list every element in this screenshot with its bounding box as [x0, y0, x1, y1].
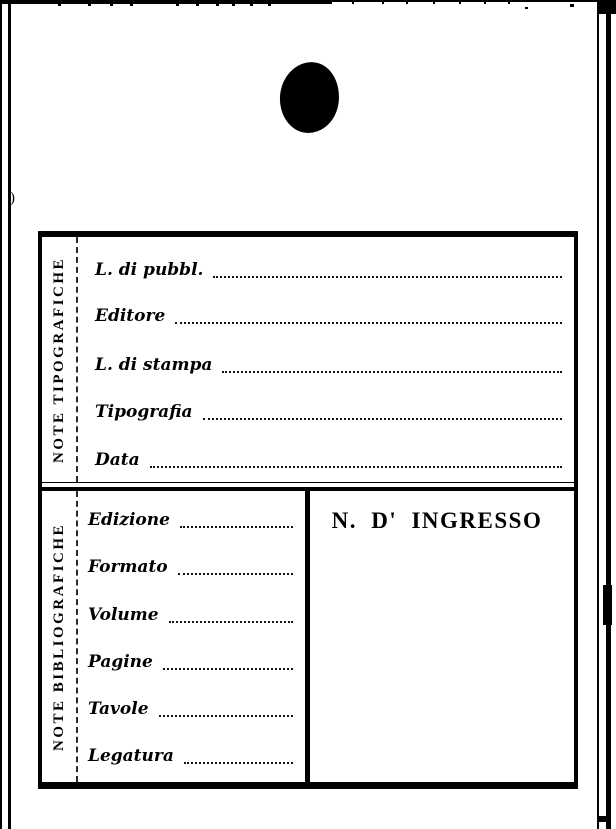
hole-punch-mark [276, 59, 342, 136]
field-label: Data [95, 450, 150, 470]
scan-artifact-top-bar [332, 0, 616, 2]
field-entry-line [169, 621, 293, 623]
scan-artifact-tick [58, 3, 61, 6]
scan-artifact-tick [406, 2, 408, 4]
field-label: Formato [88, 557, 178, 577]
field-label: Legatura [88, 746, 184, 766]
field-row: Data [95, 448, 562, 470]
scan-artifact-speck [599, 816, 608, 822]
field-entry-line [159, 715, 293, 717]
scan-artifact-right-line [606, 0, 611, 829]
scan-artifact-left-line [0, 0, 2, 829]
field-row: Pagine [88, 650, 293, 672]
scan-artifact-tick [196, 3, 199, 6]
scan-artifact-tick [250, 3, 253, 6]
section-note-bibliografiche: NOTE BIBLIOGRAFICHE Edizione Formato Vol… [42, 491, 574, 782]
field-entry-line [180, 526, 293, 528]
field-row: Tipografia [95, 400, 562, 422]
section-separator-thin-rule [42, 482, 574, 483]
scan-artifact-tick [268, 3, 271, 6]
section-note-tipografiche: NOTE TIPOGRAFICHE L. di pubbl. Editore L… [42, 237, 574, 482]
field-row: L. di stampa [95, 353, 562, 375]
side-label-strip: NOTE BIBLIOGRAFICHE [42, 491, 78, 782]
ingresso-panel: N. D' INGRESSO [310, 491, 574, 782]
field-entry-line [203, 418, 562, 420]
field-label: Editore [95, 306, 175, 326]
scan-artifact-tick [88, 3, 91, 6]
field-entry-line [163, 668, 293, 670]
scan-artifact-speck [570, 4, 574, 7]
scan-artifact-tick [484, 2, 486, 4]
field-label: Volume [88, 605, 169, 625]
scan-artifact-left-line [8, 0, 11, 829]
scan-artifact-tick [130, 3, 133, 6]
scan-artifact-right-line [597, 0, 599, 829]
ingresso-heading: N. D' INGRESSO [310, 508, 564, 534]
field-label: Tipografia [95, 402, 203, 422]
scan-artifact-tick [216, 3, 219, 6]
scan-artifact-paren: ) [10, 191, 15, 206]
field-label: L. di pubbl. [95, 260, 213, 280]
section-side-label: NOTE TIPOGRAFICHE [51, 257, 68, 463]
scan-artifact-tick [176, 3, 179, 6]
scan-artifact-tick [433, 2, 435, 4]
scan-artifact-top-bar [0, 0, 332, 4]
library-catalog-card: NOTE TIPOGRAFICHE L. di pubbl. Editore L… [38, 231, 578, 789]
scan-artifact-tick [382, 2, 384, 4]
scan-artifact-patch [603, 585, 612, 625]
scan-artifact-corner-blob [598, 0, 616, 14]
field-row: Edizione [88, 508, 293, 530]
scan-artifact-tick [232, 3, 235, 6]
field-entry-line [184, 762, 293, 764]
field-entry-line [222, 371, 562, 373]
field-label: Pagine [88, 652, 163, 672]
field-entry-line [178, 573, 293, 575]
section-side-label: NOTE BIBLIOGRAFICHE [51, 523, 68, 751]
field-entry-line [213, 276, 562, 278]
field-row: Volume [88, 603, 293, 625]
field-entry-line [175, 322, 562, 324]
scan-artifact-speck [525, 7, 528, 9]
field-row: Formato [88, 555, 293, 577]
scan-artifact-tick [459, 2, 461, 4]
field-row: Editore [95, 304, 562, 326]
side-label-strip: NOTE TIPOGRAFICHE [42, 237, 78, 482]
scan-artifact-tick [508, 2, 510, 4]
scan-artifact-tick [110, 3, 113, 6]
field-row: Legatura [88, 744, 293, 766]
field-label: Edizione [88, 510, 180, 530]
field-entry-line [150, 466, 562, 468]
field-row: Tavole [88, 697, 293, 719]
field-label: Tavole [88, 699, 159, 719]
field-row: L. di pubbl. [95, 258, 562, 280]
scan-artifact-tick [352, 2, 354, 4]
field-label: L. di stampa [95, 355, 222, 375]
